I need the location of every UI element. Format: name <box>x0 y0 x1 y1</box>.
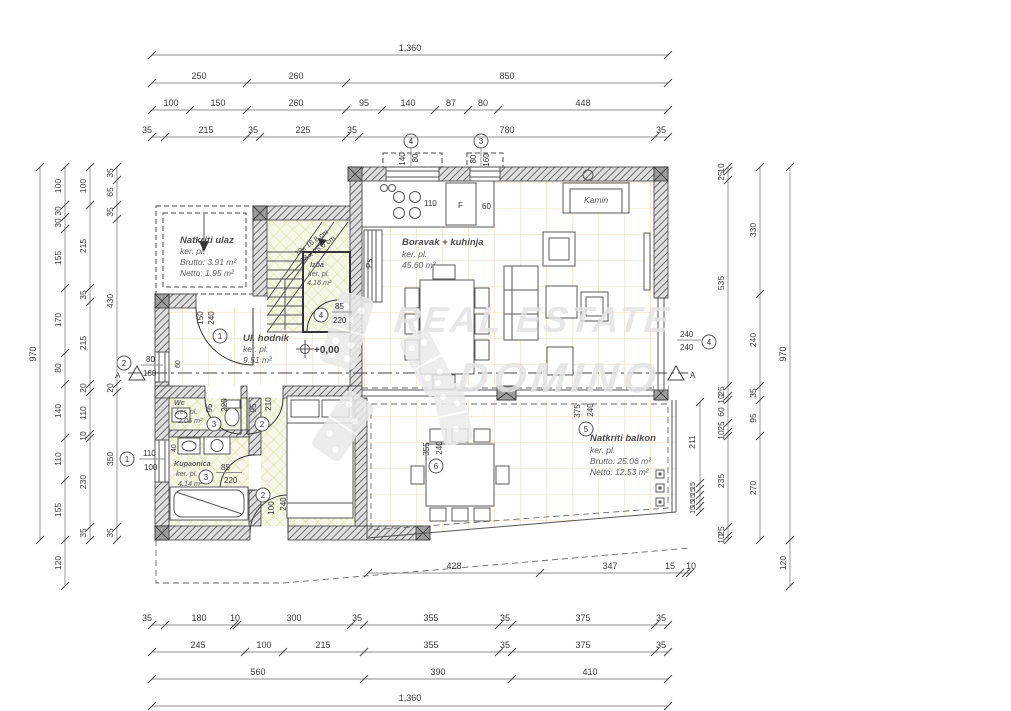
svg-text:120: 120 <box>778 556 788 570</box>
svg-text:2: 2 <box>260 420 265 429</box>
svg-text:355: 355 <box>423 613 438 623</box>
svg-text:428: 428 <box>446 561 461 571</box>
svg-text:35: 35 <box>142 613 152 623</box>
svg-text:215: 215 <box>315 640 330 650</box>
svg-text:120: 120 <box>53 556 63 570</box>
svg-text:30: 30 <box>53 218 63 228</box>
balcony-posts <box>656 470 664 506</box>
window-left-80x180 <box>155 352 169 382</box>
svg-text:95: 95 <box>205 403 214 412</box>
win4-right-tag: 2402404 <box>677 330 716 352</box>
svg-text:35: 35 <box>78 290 88 300</box>
svg-text:10: 10 <box>78 431 88 441</box>
wall-60-label: 60 <box>175 360 182 368</box>
svg-text:155: 155 <box>53 251 63 265</box>
svg-text:240: 240 <box>748 333 758 347</box>
svg-text:240: 240 <box>279 497 288 511</box>
svg-text:850: 850 <box>499 71 514 81</box>
counter-60-label: 60 <box>482 202 491 211</box>
svg-text:155: 155 <box>53 503 63 517</box>
svg-text:4: 4 <box>319 311 324 320</box>
svg-text:95: 95 <box>748 413 758 423</box>
svg-text:140: 140 <box>400 98 415 108</box>
svg-text:80: 80 <box>478 98 488 108</box>
svg-text:85: 85 <box>221 463 230 472</box>
pantry-area: 4.16 m² <box>307 278 332 287</box>
svg-text:15: 15 <box>665 561 675 571</box>
stove-size-label: 110 <box>424 199 437 208</box>
svg-text:180: 180 <box>191 613 206 623</box>
svg-text:240: 240 <box>680 330 694 339</box>
svg-text:110: 110 <box>143 449 156 458</box>
watermark-line2: DOMINO <box>456 354 664 401</box>
svg-text:230: 230 <box>78 475 88 489</box>
porch-name: Natkriti ulaz <box>180 235 234 246</box>
balcony-netto: Netto: 12.53 m² <box>590 467 650 477</box>
svg-text:150: 150 <box>210 98 225 108</box>
svg-text:225: 225 <box>295 125 310 135</box>
svg-text:110: 110 <box>53 452 63 466</box>
hall-name: Ul. hodnik <box>243 333 290 344</box>
bath-sink <box>178 438 200 454</box>
svg-text:80: 80 <box>146 355 155 364</box>
svg-text:6: 6 <box>434 462 439 471</box>
svg-text:10: 10 <box>686 561 696 571</box>
svg-text:235: 235 <box>716 474 726 488</box>
watermark-line1: REAL ESTATE <box>392 299 673 340</box>
svg-text:2: 2 <box>122 359 127 368</box>
win4-top-tag: 414080 <box>398 134 420 166</box>
svg-text:300: 300 <box>286 613 301 623</box>
svg-text:140: 140 <box>53 404 63 418</box>
svg-text:3: 3 <box>204 473 209 482</box>
svg-text:375: 375 <box>575 613 590 623</box>
svg-text:100: 100 <box>78 179 88 193</box>
svg-text:85: 85 <box>335 302 344 311</box>
svg-text:35: 35 <box>748 388 758 398</box>
svg-text:30: 30 <box>53 206 63 216</box>
svg-text:10: 10 <box>230 613 240 623</box>
svg-text:560: 560 <box>250 667 265 677</box>
tv-sideboard <box>644 233 650 290</box>
svg-text:780: 780 <box>499 125 514 135</box>
svg-text:5: 5 <box>584 425 589 434</box>
svg-text:260: 260 <box>288 71 303 81</box>
svg-text:100: 100 <box>163 98 178 108</box>
dim-bottom-total: 1,360 <box>399 693 422 703</box>
svg-text:150: 150 <box>196 311 205 325</box>
svg-text:210: 210 <box>264 397 273 411</box>
living-name: Boravak + kuhinja <box>402 237 484 248</box>
balcony-name: Natkriti balkon <box>590 433 656 444</box>
svg-text:3: 3 <box>479 137 484 146</box>
svg-text:245: 245 <box>190 640 205 650</box>
svg-text:10: 10 <box>716 394 726 404</box>
svg-text:110: 110 <box>78 406 88 420</box>
balcony-brutto: Brutto: 25.06 m² <box>590 456 652 466</box>
porch-floor: ker. pl. <box>180 246 205 256</box>
svg-text:80: 80 <box>53 363 63 373</box>
svg-text:87: 87 <box>446 98 456 108</box>
svg-text:35: 35 <box>500 613 510 623</box>
svg-text:160: 160 <box>482 153 491 167</box>
dim-top-total: 1,360 <box>399 43 422 53</box>
svg-text:250: 250 <box>191 71 206 81</box>
svg-text:260: 260 <box>288 98 303 108</box>
svg-text:448: 448 <box>575 98 590 108</box>
svg-text:1: 1 <box>125 455 130 464</box>
svg-text:10: 10 <box>716 534 726 544</box>
level-label: +0,00 <box>314 345 340 356</box>
svg-text:35: 35 <box>142 125 152 135</box>
svg-text:170: 170 <box>53 313 63 327</box>
living-area: 45.60 m² <box>402 260 437 270</box>
porch-brutto: Brutto: 3.91 m² <box>180 257 237 267</box>
svg-text:35: 35 <box>656 613 666 623</box>
svg-text:375: 375 <box>573 404 582 418</box>
svg-text:1: 1 <box>218 332 223 341</box>
svg-text:10: 10 <box>716 430 726 440</box>
svg-text:220: 220 <box>220 398 229 412</box>
svg-text:65: 65 <box>105 187 115 197</box>
wc-floor-label: ker. pl. <box>176 407 197 416</box>
svg-text:60: 60 <box>716 407 726 417</box>
svg-text:211: 211 <box>687 435 697 449</box>
svg-text:535: 535 <box>716 276 726 290</box>
hall-area: 9.51 m² <box>243 355 273 365</box>
svg-text:35: 35 <box>105 207 115 217</box>
svg-text:240: 240 <box>586 403 595 417</box>
svg-text:180: 180 <box>143 369 157 378</box>
bath-area: 4.14 m² <box>178 479 203 488</box>
wc-name: Wc <box>174 398 185 407</box>
hall-floor-label: ker. pl. <box>243 344 268 354</box>
svg-text:2: 2 <box>261 491 266 500</box>
fridge-label: F <box>458 201 463 210</box>
svg-text:215: 215 <box>198 125 213 135</box>
svg-text:95: 95 <box>359 98 369 108</box>
svg-text:390: 390 <box>430 667 445 677</box>
svg-text:270: 270 <box>748 481 758 495</box>
svg-text:35: 35 <box>248 125 258 135</box>
svg-text:4: 4 <box>409 137 414 146</box>
living-floor-label: ker. pl. <box>402 249 427 259</box>
svg-text:100: 100 <box>267 501 276 515</box>
bath-name: Kupaonica <box>174 459 211 468</box>
svg-text:100: 100 <box>144 463 158 472</box>
window-left-110x100 <box>155 440 169 482</box>
pantry-shelf: Ps <box>364 230 382 302</box>
sink-40-label: 40 <box>171 444 178 452</box>
floor-plan-sheet: 19x 16.8 cm 18 x 25.0 cm A A 110 F 60 Ps… <box>0 0 1011 711</box>
svg-text:100: 100 <box>53 179 63 193</box>
pantry-floor-label: ker. pl. <box>308 269 329 278</box>
svg-text:80: 80 <box>411 153 420 162</box>
svg-text:35: 35 <box>347 125 357 135</box>
svg-text:140: 140 <box>398 152 407 166</box>
svg-text:215: 215 <box>78 239 88 253</box>
svg-text:240: 240 <box>435 441 444 455</box>
svg-text:3: 3 <box>212 420 217 429</box>
porch-netto: Netto: 1.95 m² <box>180 268 235 278</box>
svg-text:35: 35 <box>500 640 510 650</box>
svg-text:220: 220 <box>224 476 238 485</box>
svg-text:25: 25 <box>716 421 726 431</box>
win3-tag: 380160 <box>469 134 491 167</box>
svg-text:215: 215 <box>78 336 88 350</box>
svg-text:220: 220 <box>333 316 347 325</box>
svg-text:20: 20 <box>78 383 88 393</box>
pantry-shelf-label: Ps <box>365 259 374 268</box>
dim-left-total: 970 <box>28 346 38 361</box>
svg-text:80: 80 <box>469 154 478 163</box>
pantry-name: Izba <box>310 260 324 269</box>
svg-text:240: 240 <box>680 343 694 352</box>
svg-text:100: 100 <box>256 640 271 650</box>
svg-text:347: 347 <box>602 561 617 571</box>
section-label-left: A <box>115 371 121 380</box>
svg-text:355: 355 <box>422 442 431 456</box>
balcony-floor-label: ker. pl. <box>590 445 615 455</box>
fireplace-label: Kamin <box>584 195 608 205</box>
svg-text:240: 240 <box>207 311 216 325</box>
svg-text:4: 4 <box>707 338 712 347</box>
floor-plan-drawing: 19x 16.8 cm 18 x 25.0 cm A A 110 F 60 Ps… <box>0 0 1011 711</box>
svg-text:95: 95 <box>249 403 258 412</box>
svg-text:35: 35 <box>78 528 88 538</box>
dim-right-total: 970 <box>778 346 788 361</box>
svg-text:20: 20 <box>105 383 115 393</box>
svg-text:35: 35 <box>352 613 362 623</box>
svg-text:330: 330 <box>748 223 758 237</box>
svg-text:35: 35 <box>656 640 666 650</box>
svg-text:430: 430 <box>105 294 115 308</box>
svg-text:375: 375 <box>575 640 590 650</box>
svg-text:355: 355 <box>423 640 438 650</box>
svg-text:35: 35 <box>105 168 115 178</box>
svg-text:25: 25 <box>716 171 726 181</box>
wc-area: 2.06 m² <box>177 416 203 425</box>
bath-floor-label: ker. pl. <box>176 469 197 478</box>
svg-text:15: 15 <box>690 506 697 514</box>
svg-text:350: 350 <box>105 452 115 466</box>
section-label-right: A <box>690 371 696 380</box>
svg-text:35: 35 <box>105 528 115 538</box>
svg-text:35: 35 <box>656 125 666 135</box>
svg-text:410: 410 <box>582 667 597 677</box>
